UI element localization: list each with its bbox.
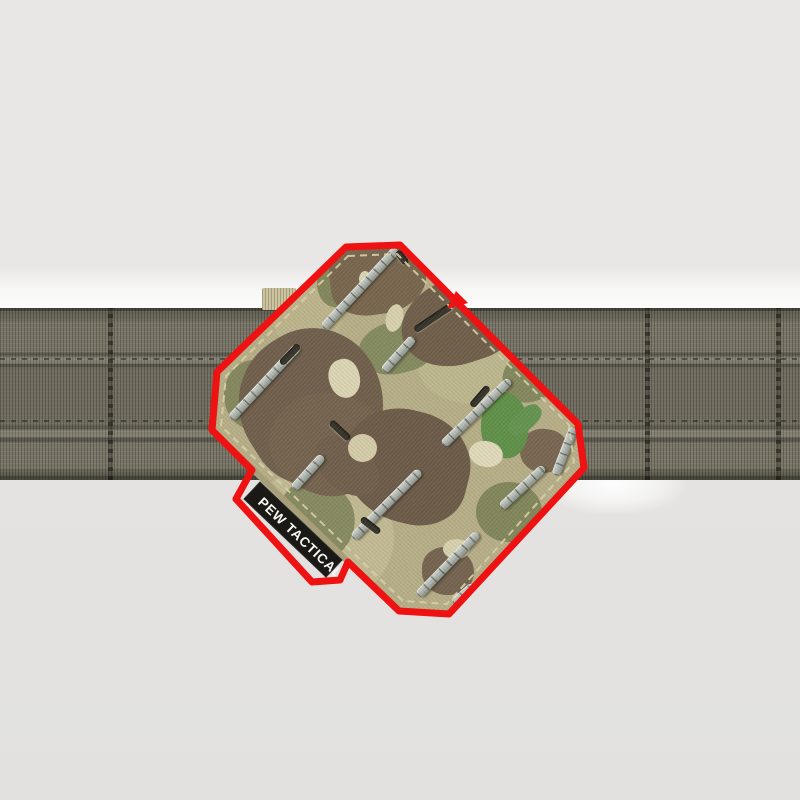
molle-slot (439, 376, 512, 447)
molle-slot (290, 453, 326, 492)
molle-slot (380, 334, 417, 373)
camo-blob (467, 438, 505, 470)
camo-blob (303, 424, 391, 508)
camo-blob (422, 547, 474, 595)
belt-stitch-seam (108, 308, 113, 480)
belt-stitch-seam (776, 308, 781, 480)
camo-blob (238, 470, 394, 606)
molle-slot (450, 582, 476, 607)
camo-blob (478, 390, 533, 461)
camo-blob (383, 302, 406, 333)
camo-blob (255, 375, 397, 512)
molle-slot-dark (278, 342, 301, 366)
camo-blob (330, 396, 481, 536)
camo-blob (353, 313, 438, 382)
molle-slot (551, 426, 578, 477)
molle-slot (415, 530, 481, 598)
molle-slot-dark (328, 419, 352, 442)
camo-blob (517, 425, 572, 477)
camo-blob (224, 360, 284, 430)
molle-slot-dark (394, 249, 409, 266)
camo-blob (312, 244, 369, 312)
camo-blob (476, 482, 542, 542)
camo-blob (443, 539, 470, 559)
camo-blob (504, 400, 546, 440)
belt-stitch-seam (645, 308, 650, 480)
camo-blob (264, 471, 365, 575)
molle-slot (320, 245, 400, 330)
molle-slot-dark (413, 301, 455, 333)
camo-blob (326, 238, 431, 321)
molle-slot (497, 464, 546, 511)
camo-blob (359, 271, 371, 287)
molle-slot (349, 467, 423, 541)
camo-blob (348, 434, 377, 462)
camo-blob (324, 355, 366, 402)
molle-slot-dark (359, 515, 381, 535)
product-photo: PEW TACTICAL (0, 0, 800, 800)
molle-slot (227, 343, 301, 422)
molle-slot-dark (469, 384, 491, 408)
